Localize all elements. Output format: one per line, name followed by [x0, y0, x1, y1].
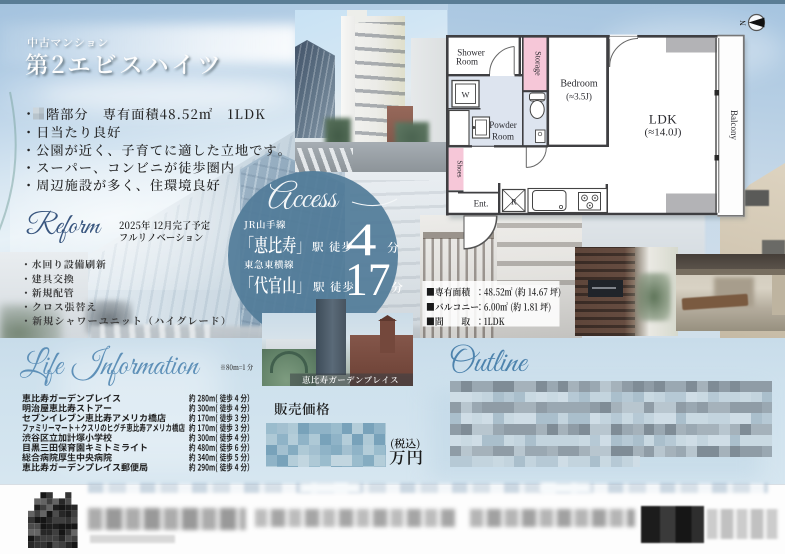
- svg-text:(≈3.5J): (≈3.5J): [566, 92, 592, 102]
- svg-text:R: R: [511, 197, 517, 207]
- svg-text:Shoes: Shoes: [456, 160, 464, 177]
- svg-text:W: W: [461, 90, 469, 100]
- svg-text:Room: Room: [492, 132, 514, 142]
- svg-text:Balcony: Balcony: [729, 110, 739, 140]
- svg-text:Room: Room: [456, 57, 478, 67]
- svg-text:(≈14.0J): (≈14.0J): [645, 127, 682, 139]
- svg-text:Powder: Powder: [489, 120, 517, 130]
- svg-text:N: N: [739, 20, 748, 26]
- svg-text:Ent.: Ent.: [474, 199, 489, 209]
- svg-text:Storage: Storage: [534, 51, 543, 76]
- svg-text:17: 17: [345, 254, 391, 306]
- svg-text:LDK: LDK: [649, 112, 677, 127]
- svg-text:Bedroom: Bedroom: [560, 79, 597, 90]
